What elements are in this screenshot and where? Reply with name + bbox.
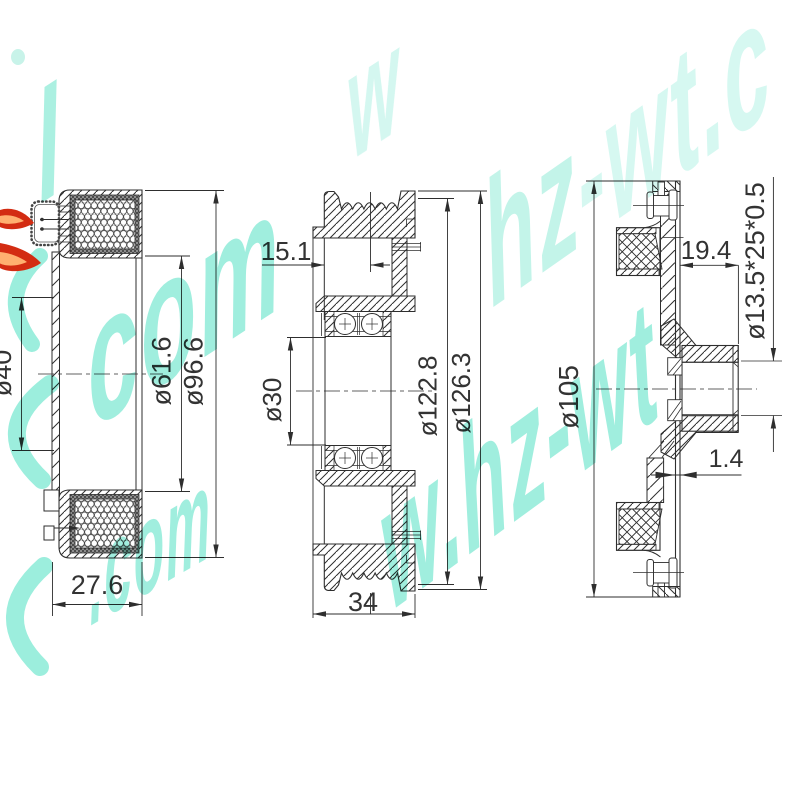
svg-text:34: 34 (348, 587, 378, 617)
svg-text:ø13.5*25*0.5: ø13.5*25*0.5 (740, 182, 770, 340)
svg-text:ø40: ø40 (0, 350, 17, 397)
svg-text:1.4: 1.4 (709, 445, 744, 473)
svg-text:19.4: 19.4 (681, 235, 732, 265)
svg-text:ø30: ø30 (257, 378, 287, 423)
